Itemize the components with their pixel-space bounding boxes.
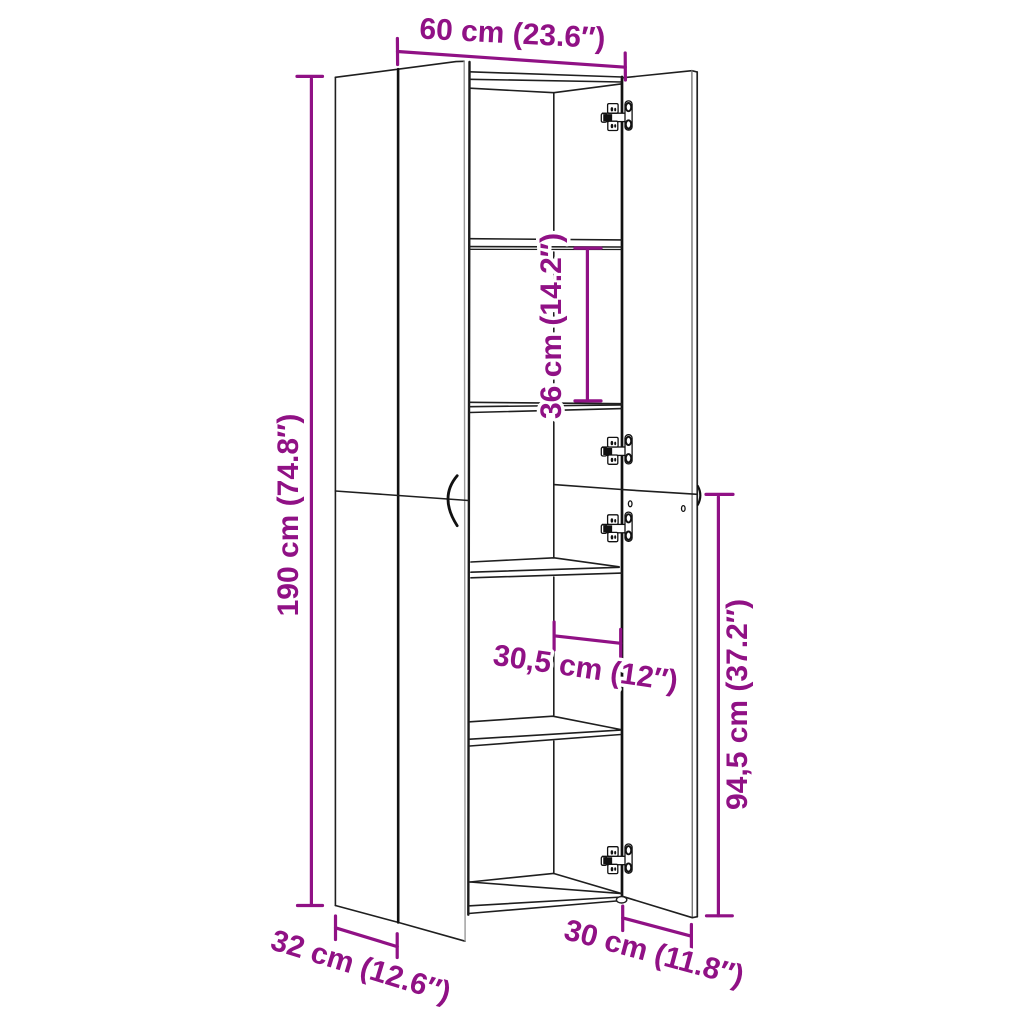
svg-text:36 cm (14.2″): 36 cm (14.2″) [535, 233, 568, 419]
svg-text:190 cm (74.8″): 190 cm (74.8″) [272, 414, 305, 617]
svg-text:94,5 cm (37.2″): 94,5 cm (37.2″) [721, 599, 754, 810]
